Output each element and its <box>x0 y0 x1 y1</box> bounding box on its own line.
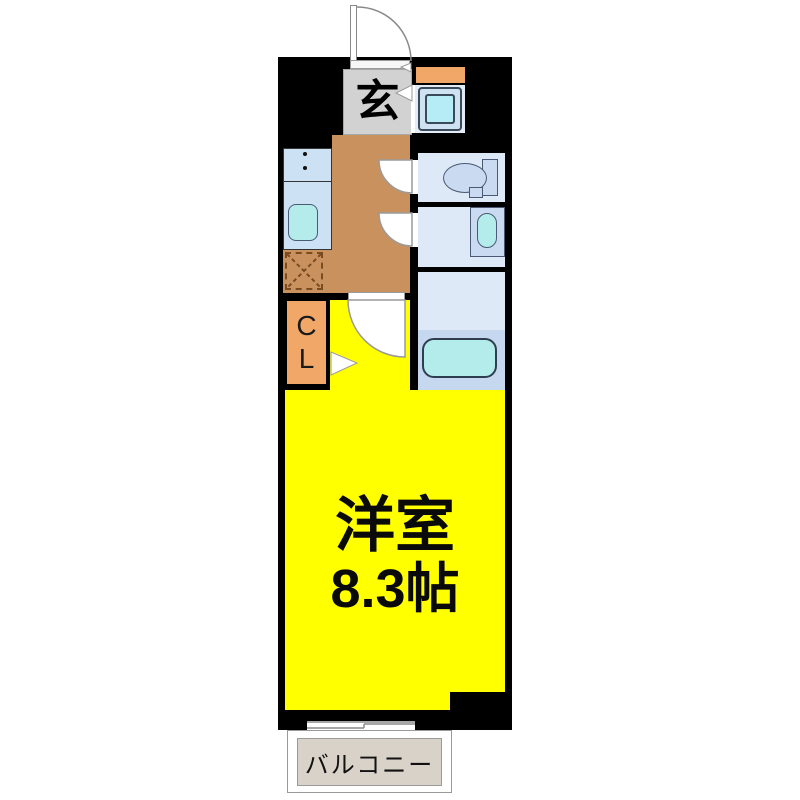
toilet-door-opening <box>410 160 418 194</box>
closet-label-l: L <box>299 344 315 375</box>
entrance-opening <box>350 60 410 69</box>
western-room-lower <box>285 692 450 710</box>
entrance-door-arc <box>357 7 411 61</box>
refrigerator-space <box>285 252 323 290</box>
kitchen-sink-icon <box>288 204 318 241</box>
genkan-area: 玄 <box>343 69 412 135</box>
hallway <box>332 135 410 293</box>
balcony: バルコニー <box>297 738 442 786</box>
entrance-door-leaf <box>350 5 357 61</box>
closet-label-c: C <box>296 311 316 342</box>
balcony-label: バルコニー <box>305 745 435 780</box>
shoe-cabinet <box>416 67 465 83</box>
stove-burner-dot <box>303 152 307 156</box>
genkan-label: 玄 <box>356 80 400 124</box>
toilet-seat-box <box>469 187 483 198</box>
stove-icon <box>283 148 332 182</box>
washing-machine-drum <box>425 94 455 124</box>
western-room-upper <box>330 300 410 390</box>
closet: C L <box>283 297 330 388</box>
wash-basin-icon <box>477 213 497 248</box>
floor-plan: 玄 C L バルコニー <box>0 0 800 800</box>
bathtub-icon <box>422 338 497 378</box>
stove-burner-dot <box>303 166 307 170</box>
sliding-window <box>307 721 415 730</box>
bathroom-floor <box>418 272 505 330</box>
room-door-opening <box>348 292 405 301</box>
room-name: 洋室 <box>285 492 505 559</box>
room-size: 8.3帖 <box>285 559 505 619</box>
western-room-label: 洋室 8.3帖 <box>285 492 505 620</box>
washroom-door-opening <box>410 213 418 247</box>
